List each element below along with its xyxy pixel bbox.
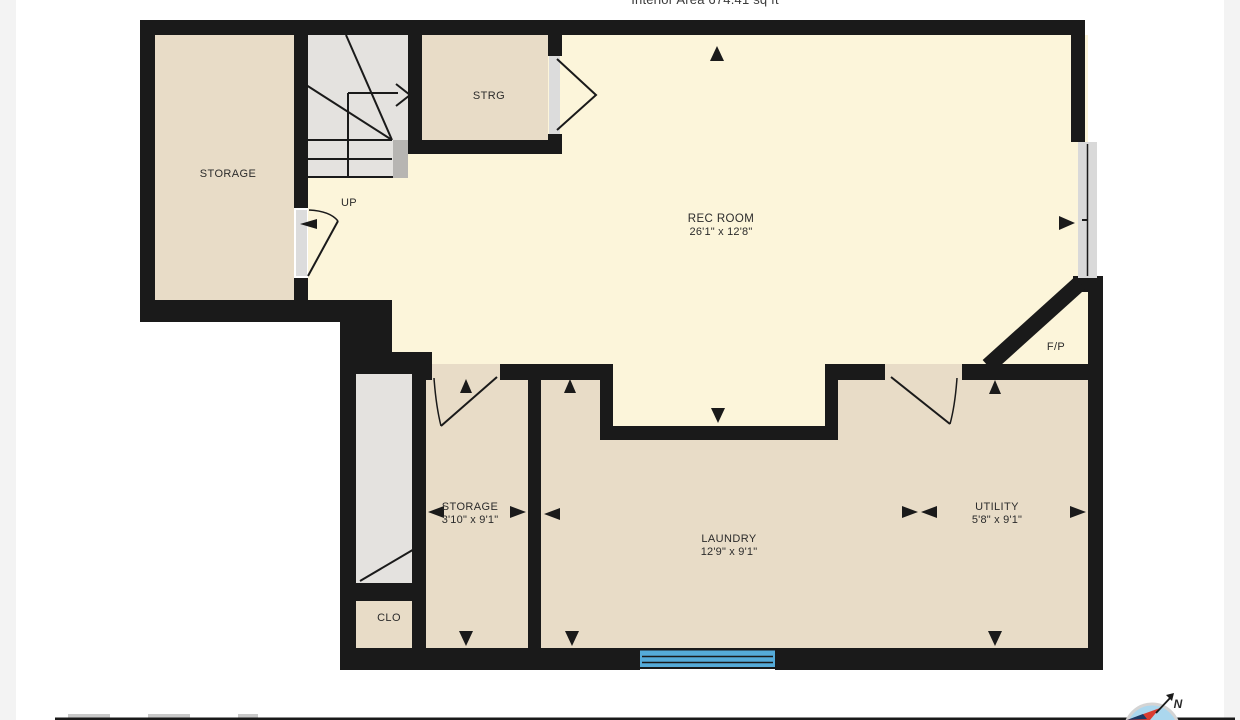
room-strg-floor (422, 35, 548, 140)
footer (55, 714, 1235, 720)
window-right (1078, 142, 1097, 278)
room-closet-floor (356, 601, 412, 648)
page-left-gutter (0, 0, 16, 720)
floorplan-drawing: Interior Area 674.41 sq ft (0, 0, 1240, 720)
laundry-label: LAUNDRY (701, 533, 756, 545)
storage-lower-dims: 3'10" x 9'1" (442, 514, 499, 526)
interior-area-text: Interior Area 674.41 sq ft (631, 0, 779, 7)
laundry-dims: 12'9" x 9'1" (701, 546, 758, 558)
storage-upper-label: STORAGE (200, 168, 256, 180)
stair-landing (393, 140, 408, 178)
closet-label: CLO (377, 612, 401, 624)
storage-lower-label: STORAGE (442, 501, 498, 513)
rec-room-dims: 26'1" x 12'8" (690, 226, 753, 238)
stairs-up-label: UP (341, 197, 357, 209)
floorplan-page: Interior Area 674.41 sq ft (0, 0, 1240, 720)
strg-label: STRG (473, 90, 505, 102)
under-stair-storage-floor (356, 374, 412, 583)
utility-label: UTILITY (975, 501, 1019, 513)
north-label: N (1174, 697, 1183, 711)
utility-dims: 5'8" x 9'1" (972, 514, 1022, 526)
compass-icon: N (1125, 693, 1183, 720)
page-right-gutter (1224, 0, 1240, 720)
fireplace-label: F/P (1047, 341, 1065, 353)
rec-room-label: REC ROOM (688, 213, 754, 225)
window-bottom (640, 648, 775, 669)
